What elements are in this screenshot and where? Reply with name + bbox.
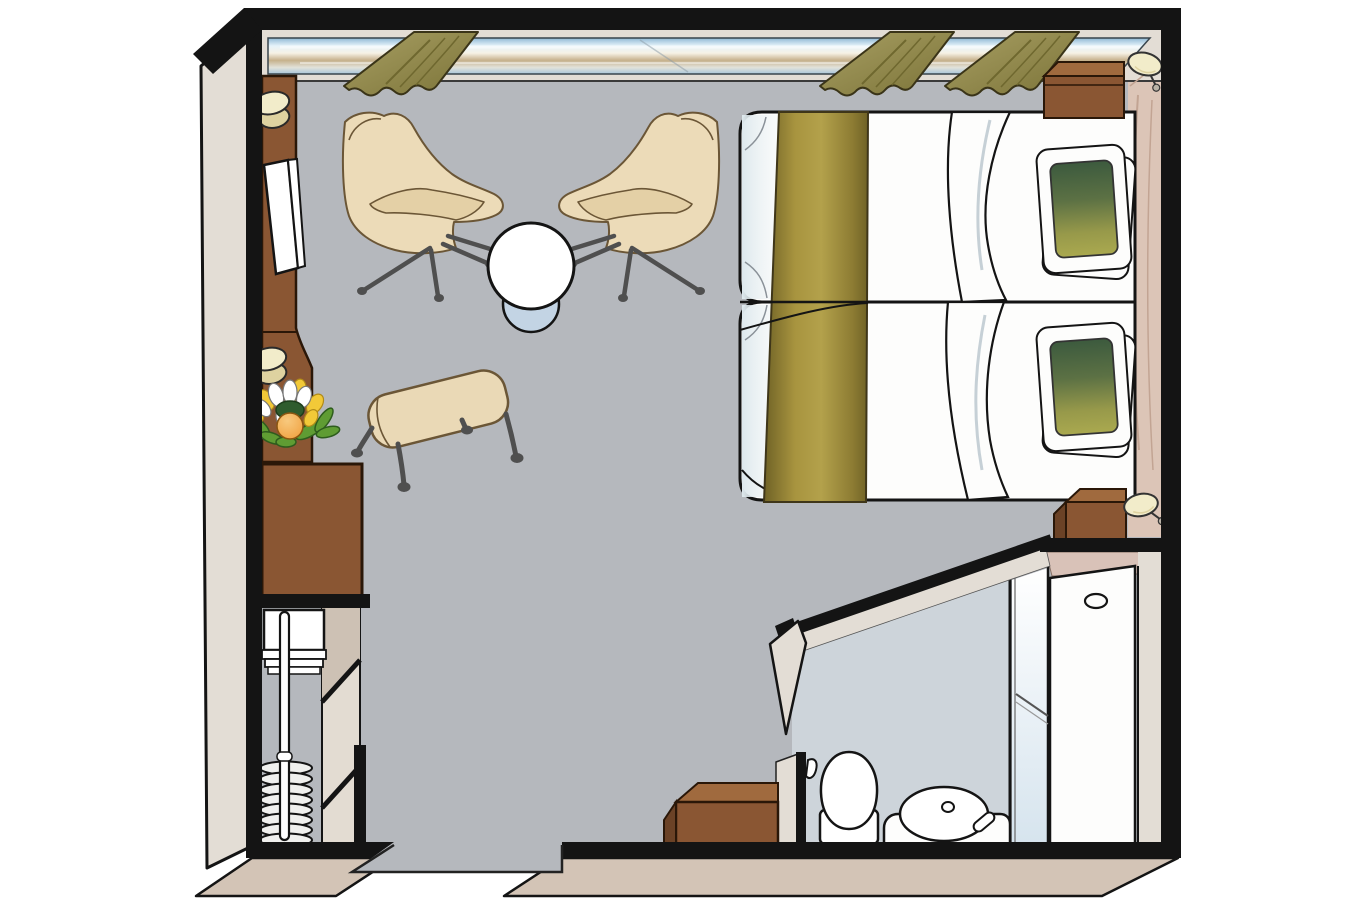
top-wall — [244, 8, 1181, 30]
hanging-rail — [277, 612, 292, 840]
bed-runner — [764, 112, 868, 502]
pillow-1 — [1036, 144, 1136, 280]
toilet-bowl — [821, 752, 877, 829]
floor-skirt-right — [504, 858, 1178, 896]
bottom-wall-right — [562, 842, 1181, 858]
vase — [277, 413, 303, 439]
wardrobe — [246, 594, 370, 847]
twin-beds — [740, 112, 1136, 502]
cabin-floor-plan — [0, 0, 1367, 911]
coffee-table — [488, 223, 574, 309]
wardrobe-top-wall — [246, 594, 370, 608]
dresser-cabinet — [262, 464, 362, 596]
shower-floor — [1012, 568, 1048, 845]
bathroom-wall-top — [1040, 538, 1181, 552]
cabin-floor-plan-canvas — [0, 0, 1367, 911]
nightstand-1 — [1044, 62, 1124, 118]
pillow-2 — [1036, 322, 1136, 458]
shower — [1010, 566, 1135, 845]
bathroom-partition — [776, 752, 806, 845]
wardrobe-doors — [322, 608, 366, 845]
wardrobe-shelves — [262, 610, 326, 674]
bottom-wall-left — [246, 842, 394, 858]
sink-basin — [900, 787, 988, 841]
right-wall — [1161, 10, 1181, 858]
left-wall — [201, 22, 252, 868]
